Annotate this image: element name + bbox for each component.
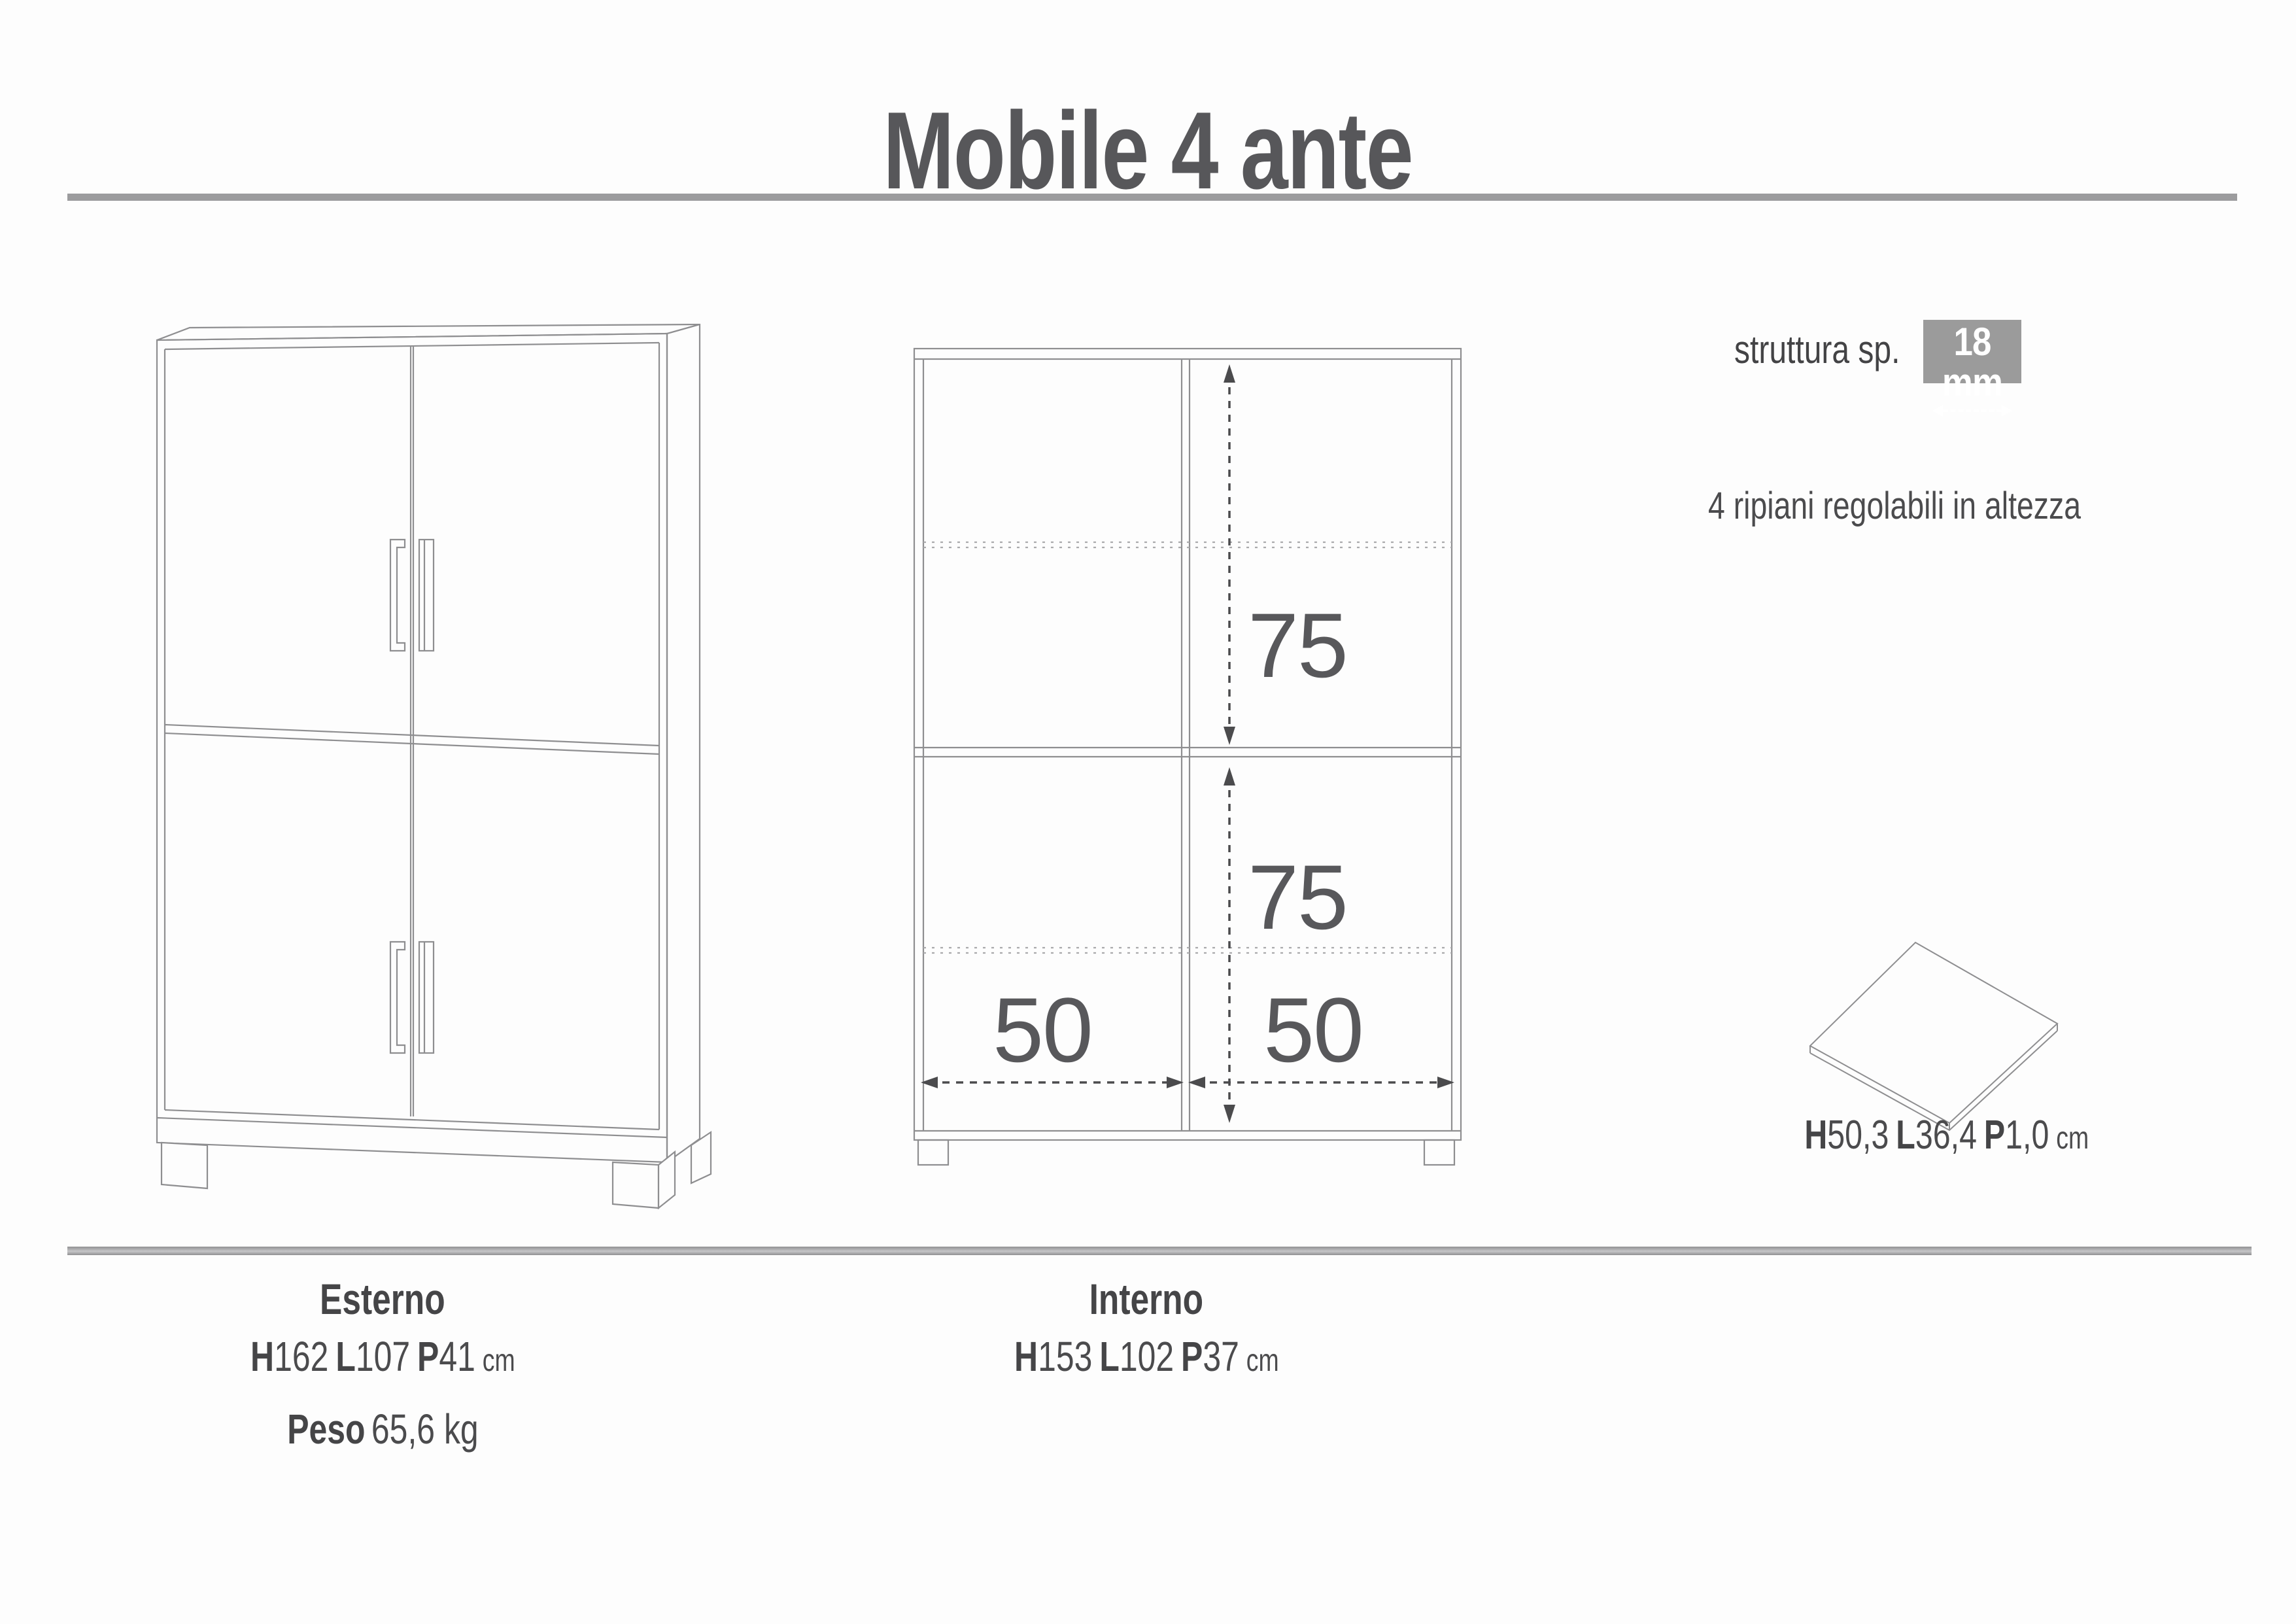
external-dimensions-block: Esterno H162L107P41cm Peso65,6 kg — [183, 1277, 582, 1452]
cabinet-3d-drawing — [147, 324, 768, 1239]
cabinet-foot-back-right — [691, 1132, 711, 1183]
door-handle-top-left — [390, 540, 405, 651]
page-title: Mobile 4 ante — [0, 95, 2296, 205]
thickness-value: 18 mm — [1929, 320, 2015, 403]
cabinet-top-panel — [157, 324, 700, 340]
cabinet-front-face — [157, 334, 667, 1162]
door-top-edge — [165, 343, 659, 349]
arrowhead — [1224, 727, 1235, 745]
bottom-divider — [67, 1247, 2252, 1255]
middle-door-gap-line — [165, 725, 659, 746]
thickness-badge: 18 mm — [1923, 320, 2021, 383]
spec-sheet-page: Mobile 4 ante — [0, 0, 2296, 1624]
arrow-dashed-shaft — [1943, 409, 2002, 412]
internal-dimensions-block: Interno H153L102P37cm — [947, 1277, 1346, 1379]
middle-door-gap-line — [165, 733, 659, 754]
shelf-panel-drawing — [1792, 927, 2073, 1143]
shelf-top-face — [1810, 942, 2057, 1123]
arrowhead — [1224, 364, 1235, 383]
arrowhead — [1224, 767, 1235, 786]
dim-label-right-50: 50 — [1263, 978, 1363, 1081]
shelves-note: 4 ripiani regolabili in altezza — [1708, 484, 2174, 528]
cabinet-foot-right-side — [659, 1152, 675, 1208]
door-bottom-edge — [165, 1110, 659, 1130]
top-divider — [67, 194, 2237, 201]
door-handle-bottom-left — [390, 942, 405, 1053]
cabinet-foot-left — [162, 1143, 207, 1188]
external-dimensions: H162L107P41cm — [183, 1335, 582, 1379]
dim-label-top-75: 75 — [1248, 594, 1347, 697]
internal-title: Interno — [947, 1277, 1346, 1322]
cabinet-side-panel — [667, 324, 700, 1162]
plinth-top-edge — [157, 1118, 667, 1137]
structure-label: struttura sp. — [1734, 320, 1942, 383]
foot-right — [1424, 1140, 1454, 1165]
arrowhead — [1224, 1105, 1235, 1123]
dim-label-bottom-75: 75 — [1248, 846, 1347, 948]
weight-value: 65,6 kg — [371, 1406, 478, 1453]
thickness-arrow-icon — [1932, 405, 2012, 417]
arrow-right-head — [2002, 405, 2012, 417]
door-handle-bottom-right — [419, 942, 434, 1053]
weight-row: Peso65,6 kg — [183, 1408, 582, 1451]
door-handle-top-right — [419, 540, 434, 651]
foot-left — [918, 1140, 948, 1165]
arrowhead — [1188, 1077, 1205, 1088]
front-view-diagram: 75 75 50 50 — [908, 343, 1477, 1174]
arrow-left-head — [1932, 405, 1943, 417]
dim-label-left-50: 50 — [993, 978, 1092, 1081]
cabinet-foot-right-front — [613, 1162, 659, 1208]
shelf-dimensions: H50,3L36,4P1,0cm — [1764, 1112, 2104, 1158]
page-title-text: Mobile 4 ante — [883, 95, 1413, 205]
weight-label: Peso — [287, 1406, 365, 1453]
external-title: Esterno — [183, 1277, 582, 1322]
internal-dimensions: H153L102P37cm — [947, 1335, 1346, 1379]
